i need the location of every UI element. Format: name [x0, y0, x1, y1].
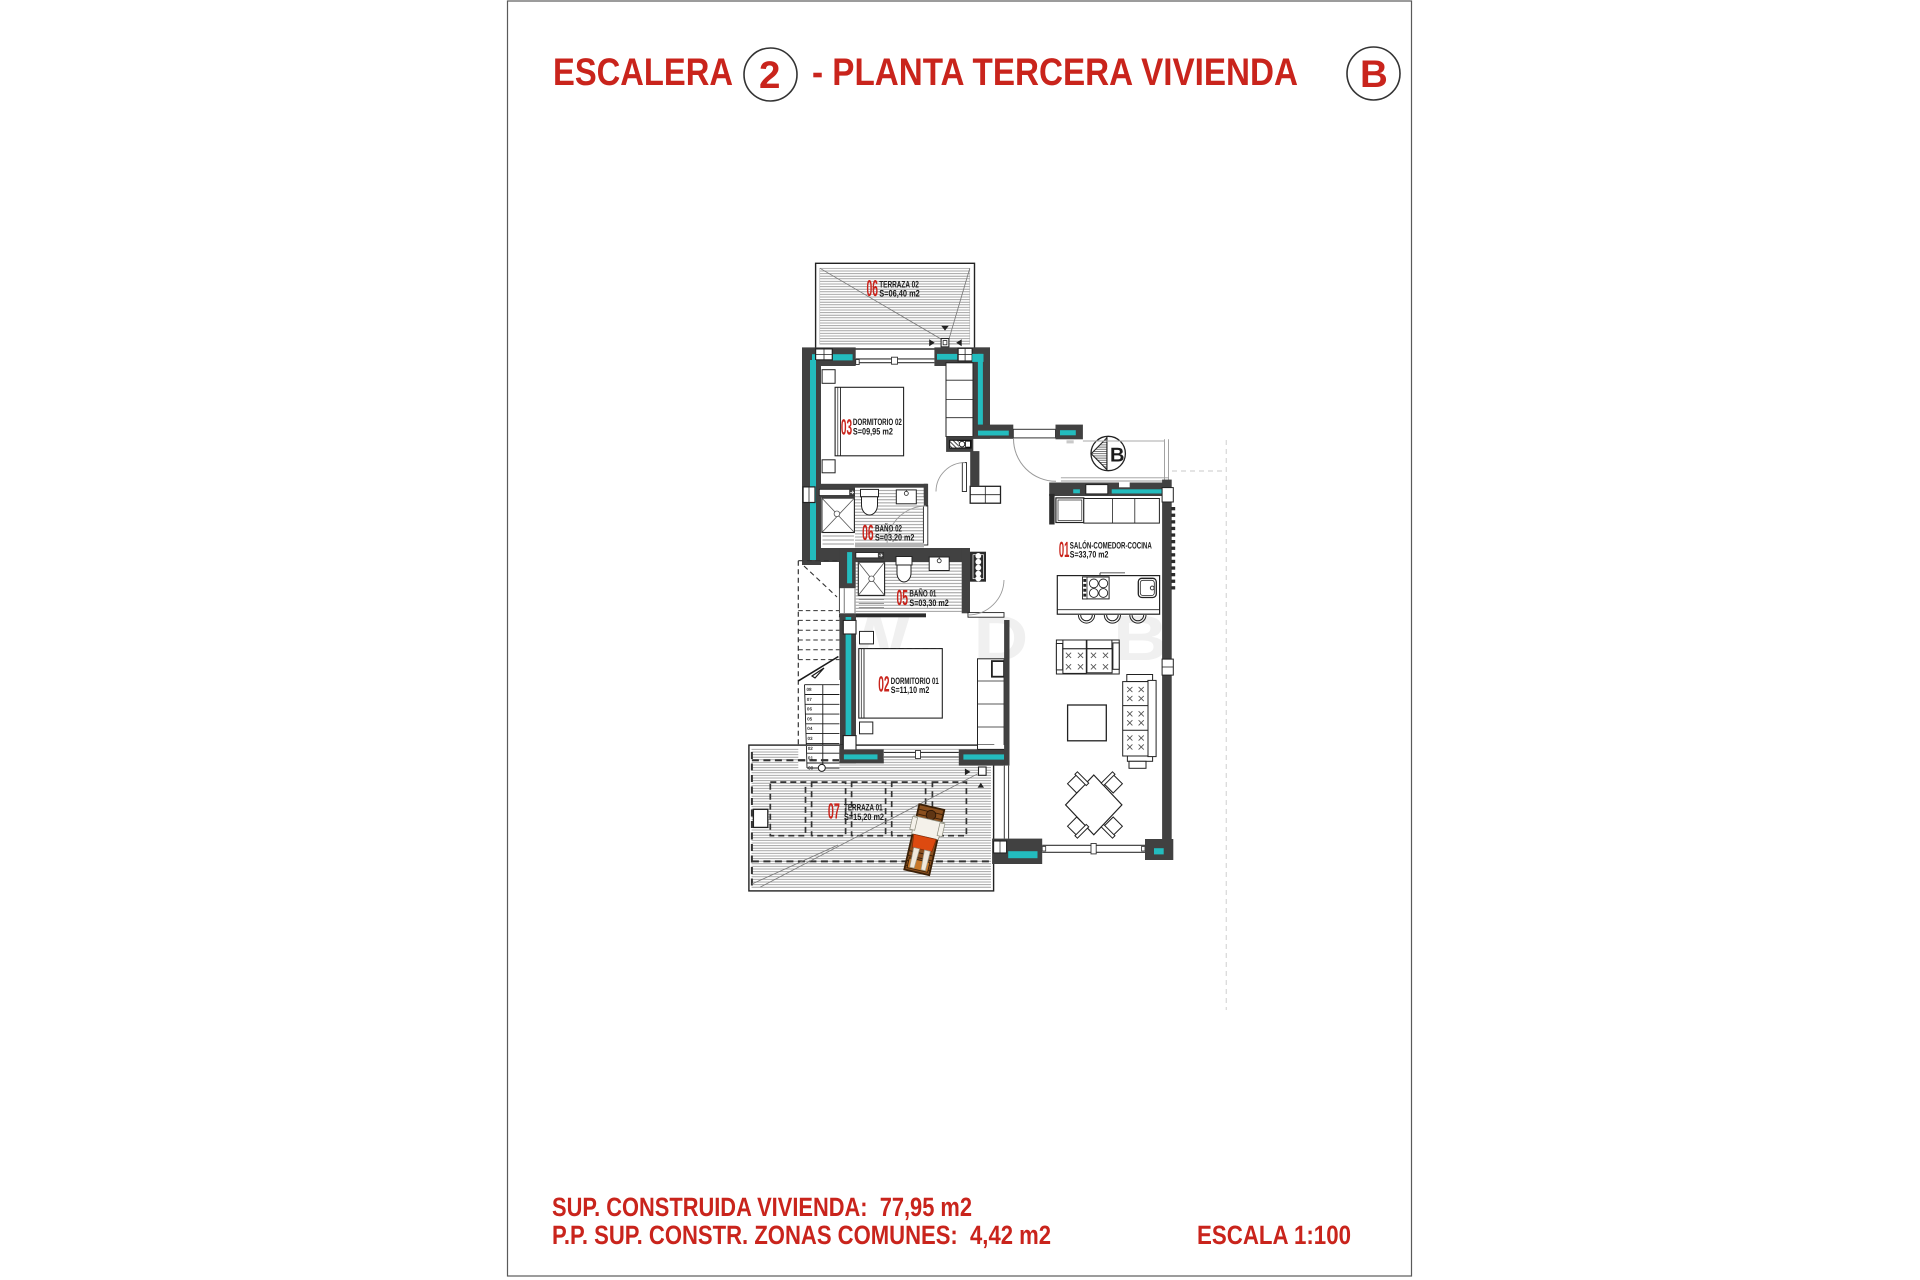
- svg-text:S=11,10 m2: S=11,10 m2: [891, 685, 930, 695]
- svg-text:02: 02: [808, 746, 814, 751]
- svg-text:08: 08: [807, 687, 813, 692]
- svg-text:07: 07: [828, 798, 840, 823]
- svg-text:04: 04: [807, 726, 813, 731]
- svg-text:01: 01: [1059, 537, 1070, 562]
- svg-text:S=09,95 m2: S=09,95 m2: [853, 426, 893, 436]
- svg-text:B: B: [1360, 53, 1388, 96]
- svg-text:06: 06: [807, 707, 813, 712]
- svg-text:S=33,70 m2: S=33,70 m2: [1070, 550, 1109, 560]
- svg-text:06: 06: [867, 275, 879, 301]
- svg-text:07: 07: [807, 697, 813, 702]
- svg-text:S=03,30 m2: S=03,30 m2: [909, 598, 948, 608]
- svg-text:2: 2: [759, 54, 780, 97]
- svg-text:05: 05: [897, 585, 909, 610]
- svg-text:S=15,20 m2: S=15,20 m2: [844, 812, 884, 822]
- svg-text:P.P. SUP. CONSTR. ZONAS COMUNE: P.P. SUP. CONSTR. ZONAS COMUNES: 4,42 m2: [552, 1220, 1051, 1250]
- svg-text:S=03,20 m2: S=03,20 m2: [875, 533, 914, 543]
- svg-text:ESCALERA: ESCALERA: [553, 51, 733, 94]
- svg-text:05: 05: [807, 716, 813, 721]
- svg-text:02: 02: [878, 672, 889, 697]
- svg-text:SUP. CONSTRUIDA VIVIENDA: 77,: SUP. CONSTRUIDA VIVIENDA: 77,95 m2: [552, 1192, 972, 1222]
- svg-text:S=06,40 m2: S=06,40 m2: [879, 288, 920, 299]
- svg-text:03: 03: [841, 414, 852, 439]
- svg-text:- PLANTA TERCERA VIVIENDA: - PLANTA TERCERA VIVIENDA: [812, 51, 1298, 94]
- svg-text:06: 06: [862, 520, 874, 545]
- svg-text:03: 03: [808, 736, 814, 741]
- svg-text:00: 00: [808, 765, 814, 770]
- svg-text:B: B: [1110, 445, 1124, 467]
- svg-text:ESCALA 1:100: ESCALA 1:100: [1197, 1220, 1351, 1250]
